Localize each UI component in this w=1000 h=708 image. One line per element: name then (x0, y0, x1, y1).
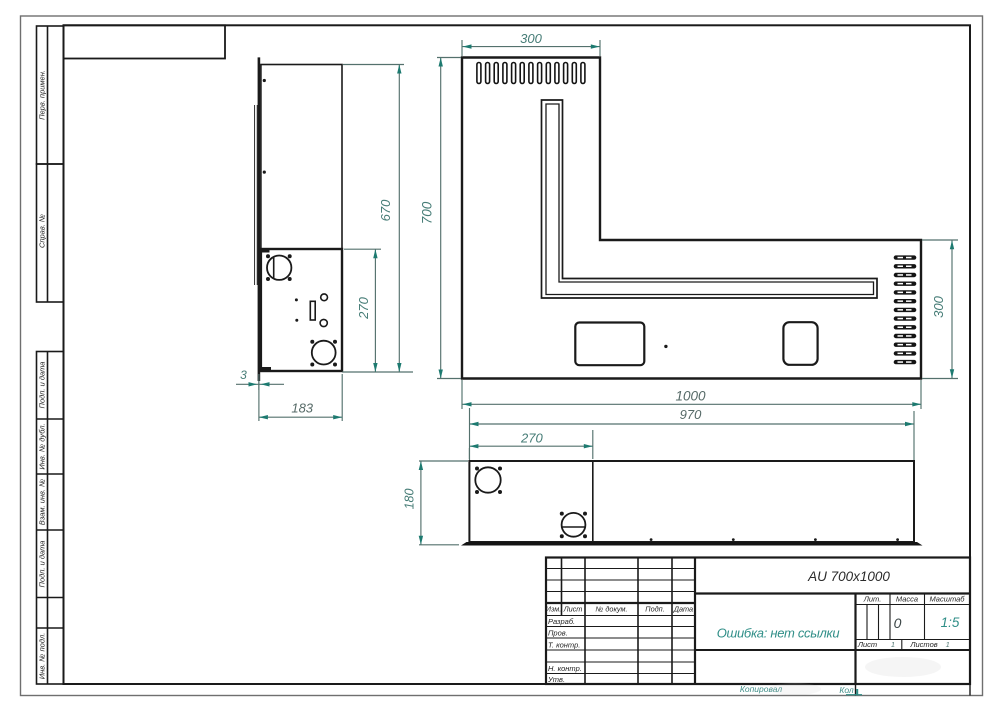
svg-text:1000: 1000 (675, 389, 706, 404)
svg-text:Ошибка: нет ссылки: Ошибка: нет ссылки (717, 626, 840, 641)
svg-text:Дата: Дата (673, 605, 693, 614)
svg-text:Справ. №: Справ. № (38, 214, 47, 248)
svg-text:Инв. № подл.: Инв. № подл. (38, 633, 47, 680)
svg-text:3: 3 (240, 368, 247, 382)
svg-text:Лист: Лист (563, 605, 583, 614)
svg-text:Подп.: Подп. (645, 605, 664, 614)
svg-text:Пров.: Пров. (548, 629, 568, 638)
svg-text:Инв. № дубл.: Инв. № дубл. (38, 423, 47, 469)
svg-text:270: 270 (356, 296, 371, 319)
svg-text:Разраб.: Разраб. (548, 617, 575, 626)
svg-text:970: 970 (680, 407, 702, 422)
svg-text:AU 700x1000: AU 700x1000 (807, 569, 890, 584)
svg-text:Лист: Лист (857, 640, 877, 649)
svg-text:270: 270 (520, 431, 543, 446)
svg-text:Взам. инв. №: Взам. инв. № (38, 479, 47, 525)
svg-text:670: 670 (378, 199, 393, 221)
svg-text:Утв.: Утв. (547, 675, 565, 684)
svg-text:700: 700 (420, 201, 435, 224)
svg-text:180: 180 (403, 489, 417, 510)
svg-text:Перв. примен.: Перв. примен. (38, 70, 47, 120)
svg-text:Т. контр.: Т. контр. (548, 641, 580, 650)
svg-text:Изм.: Изм. (546, 605, 562, 614)
svg-text:Масштаб: Масштаб (929, 595, 965, 604)
svg-text:300: 300 (931, 295, 946, 317)
svg-text:300: 300 (520, 31, 542, 46)
svg-text:Н. контр.: Н. контр. (548, 664, 582, 673)
svg-text:Лит.: Лит. (863, 595, 882, 604)
svg-text:Подп. и дата: Подп. и дата (38, 541, 47, 588)
svg-text:Листов: Листов (909, 640, 937, 649)
svg-text:Масса: Масса (896, 595, 918, 604)
svg-text:1: 1 (891, 640, 895, 649)
svg-text:№ докум.: № докум. (595, 605, 627, 614)
svg-text:Кол: Кол (839, 685, 854, 695)
svg-text:183: 183 (291, 401, 313, 416)
svg-text:Подп. и дата: Подп. и дата (38, 362, 47, 409)
svg-text:0: 0 (894, 615, 902, 631)
svg-text:1:5: 1:5 (941, 615, 960, 630)
svg-text:1: 1 (946, 640, 950, 649)
